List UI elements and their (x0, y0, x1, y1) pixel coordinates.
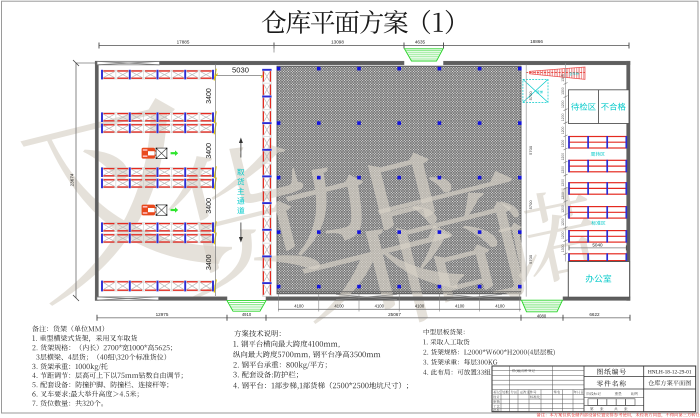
svg-text:1200: 1200 (561, 113, 565, 121)
svg-text:13098: 13098 (331, 40, 344, 45)
svg-text:6622: 6622 (589, 312, 600, 317)
svg-text:1200: 1200 (561, 192, 565, 200)
svg-text:25067: 25067 (388, 312, 401, 317)
svg-text:3400: 3400 (206, 254, 213, 270)
svg-text:1200: 1200 (561, 231, 565, 239)
svg-text:HNLH-18-12-29-01: HNLH-18-12-29-01 (648, 370, 692, 376)
svg-text:1300: 1300 (561, 244, 565, 252)
svg-text:3400: 3400 (206, 198, 213, 214)
svg-text:5700: 5700 (528, 91, 533, 101)
svg-text:4100: 4100 (415, 304, 425, 309)
svg-text:4910: 4910 (242, 312, 252, 317)
svg-text:1305: 1305 (561, 74, 565, 82)
svg-text:17885: 17885 (177, 40, 190, 45)
svg-text:1200: 1200 (561, 218, 565, 226)
svg-text:5030: 5030 (232, 65, 249, 74)
svg-text:18866: 18866 (530, 39, 543, 44)
svg-text:1200: 1200 (561, 140, 565, 148)
svg-text:1300: 1300 (561, 87, 565, 95)
svg-text:1200: 1200 (561, 127, 565, 135)
svg-text:4635: 4635 (415, 40, 426, 45)
svg-text:5040: 5040 (592, 242, 603, 247)
svg-text:5700: 5700 (528, 200, 533, 210)
svg-text:4100: 4100 (455, 304, 465, 309)
svg-text:3400: 3400 (206, 88, 213, 104)
svg-text:4080: 4080 (537, 313, 547, 318)
svg-text:1200: 1200 (561, 153, 565, 161)
svg-text:5700: 5700 (528, 145, 533, 155)
svg-text:1200: 1200 (561, 205, 565, 213)
svg-text:4100: 4100 (294, 304, 304, 309)
svg-text:1200: 1200 (561, 100, 565, 108)
svg-text:1200: 1200 (561, 179, 565, 187)
svg-text:4100: 4100 (375, 304, 385, 309)
svg-text:4100: 4100 (334, 304, 344, 309)
svg-text:4100: 4100 (495, 304, 505, 309)
svg-text:1200: 1200 (561, 166, 565, 174)
svg-text:23674: 23674 (70, 173, 75, 186)
svg-text:12975: 12975 (156, 312, 169, 317)
svg-text:5700: 5700 (528, 254, 533, 264)
svg-text:3400: 3400 (206, 143, 213, 159)
